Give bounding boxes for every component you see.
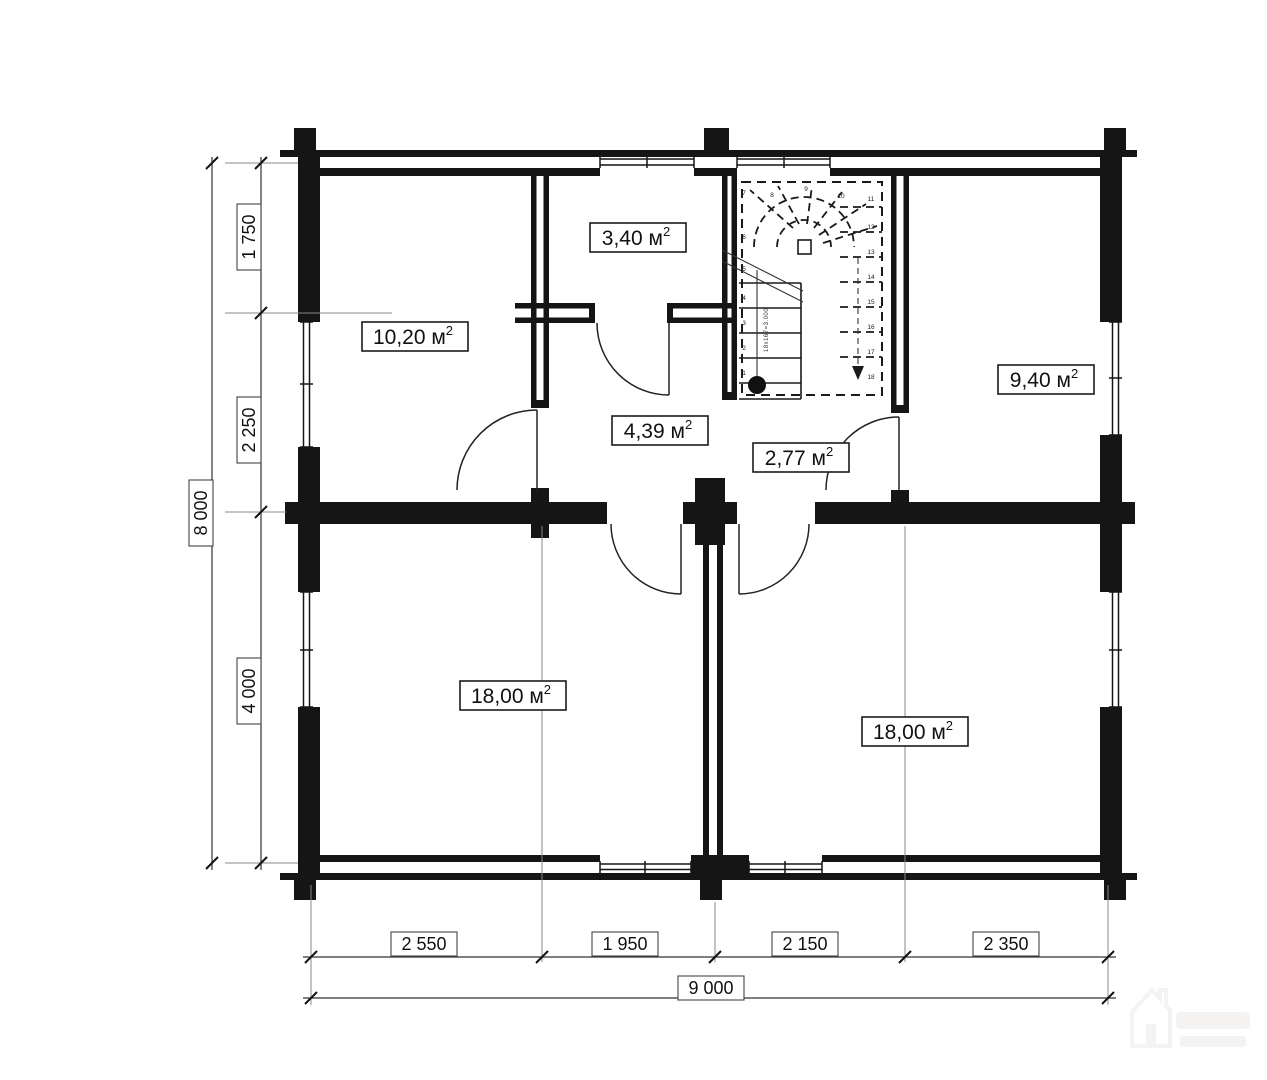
watermark-text-bar — [1176, 1012, 1250, 1029]
svg-text:2 150: 2 150 — [782, 934, 827, 954]
window-left-2 — [300, 592, 313, 707]
step-number: 1 — [742, 370, 746, 377]
step-number: 16 — [867, 324, 875, 331]
step-number: 18 — [867, 374, 875, 381]
step-number: 5 — [742, 266, 746, 273]
room-label-18-00-right: 18,00 м2 — [862, 717, 968, 746]
step-number: 7 — [742, 190, 746, 197]
door-room-3-40 — [597, 323, 669, 395]
svg-text:8 000: 8 000 — [191, 490, 211, 535]
window-right-2 — [1109, 592, 1122, 707]
walls — [280, 128, 1137, 900]
step-number: 12 — [867, 224, 875, 231]
svg-text:1 750: 1 750 — [239, 214, 259, 259]
dim-label-1950: 1 950 — [592, 932, 658, 956]
svg-text:9 000: 9 000 — [688, 978, 733, 998]
dim-label-1750: 1 750 — [237, 204, 261, 270]
svg-text:10,20 м2: 10,20 м2 — [373, 323, 453, 349]
stair-run-annotation: 18x167=3.000 — [764, 308, 770, 352]
stair-lower-flight — [739, 270, 801, 399]
dim-label-9000: 9 000 — [678, 976, 744, 1000]
svg-text:2,77 м2: 2,77 м2 — [765, 444, 833, 470]
stair-winders — [750, 186, 877, 254]
door-room-10-20 — [457, 410, 537, 490]
stair-upper-flight — [840, 207, 882, 380]
room-label-18-00-left: 18,00 м2 — [460, 681, 566, 710]
dim-label-4000: 4 000 — [237, 658, 261, 724]
svg-text:18,00 м2: 18,00 м2 — [873, 718, 953, 744]
dim-label-2250: 2 250 — [237, 397, 261, 463]
room-label-4-39: 4,39 м2 — [612, 416, 708, 445]
step-number: 13 — [867, 249, 875, 256]
window-right-1 — [1109, 322, 1122, 435]
step-number: 17 — [867, 349, 875, 356]
window-left-1 — [300, 322, 313, 447]
house-logo-icon — [1132, 990, 1170, 1046]
step-number: 11 — [868, 196, 875, 203]
step-number: 8 — [770, 192, 774, 199]
dim-label-8000: 8 000 — [189, 480, 213, 546]
room-label-9-40: 9,40 м2 — [998, 365, 1094, 394]
step-number: 10 — [837, 193, 845, 200]
svg-text:2 350: 2 350 — [983, 934, 1028, 954]
dimension-labels: 2 550 1 950 2 150 2 350 9 000 1 750 2 25… — [189, 204, 1039, 1000]
dim-label-2550: 2 550 — [391, 932, 457, 956]
door-room-18-left — [611, 524, 681, 594]
step-number: 4 — [742, 295, 746, 302]
watermark — [1132, 990, 1250, 1047]
window-top-1 — [600, 156, 694, 168]
step-number: 15 — [867, 299, 875, 306]
step-number: 9 — [804, 186, 808, 193]
svg-text:2 250: 2 250 — [239, 407, 259, 452]
svg-text:2 550: 2 550 — [401, 934, 446, 954]
step-number: 2 — [742, 345, 746, 352]
room-label-3-40: 3,40 м2 — [590, 223, 686, 252]
svg-text:3,40 м2: 3,40 м2 — [602, 224, 670, 250]
window-top-2 — [737, 156, 830, 168]
dim-label-2150: 2 150 — [772, 932, 838, 956]
step-number: 3 — [742, 320, 746, 327]
step-number: 6 — [742, 234, 746, 241]
stair-well-outline — [742, 182, 882, 395]
room-label-2-77: 2,77 м2 — [753, 443, 849, 472]
stair-direction-arrow — [852, 366, 864, 380]
svg-text:4,39 м2: 4,39 м2 — [624, 417, 692, 443]
stair-newel-post — [748, 376, 766, 394]
svg-text:9,40 м2: 9,40 м2 — [1010, 366, 1078, 392]
window-bottom-2 — [749, 861, 822, 873]
watermark-text-bar — [1180, 1036, 1246, 1047]
window-bottom-1 — [600, 861, 691, 873]
svg-text:18,00 м2: 18,00 м2 — [471, 682, 551, 708]
dim-label-2350: 2 350 — [973, 932, 1039, 956]
room-labels: 3,40 м2 10,20 м2 9,40 м2 4,39 м2 2,77 м2… — [362, 223, 1094, 746]
door-room-18-right — [739, 524, 809, 594]
staircase: 1 2 3 4 5 6 7 8 9 10 11 12 13 14 15 16 1… — [722, 182, 882, 399]
svg-text:4 000: 4 000 — [239, 668, 259, 713]
room-label-10-20: 10,20 м2 — [362, 322, 468, 351]
step-number: 14 — [867, 274, 875, 281]
floor-plan-canvas: 1 2 3 4 5 6 7 8 9 10 11 12 13 14 15 16 1… — [0, 0, 1267, 1080]
svg-text:1 950: 1 950 — [602, 934, 647, 954]
